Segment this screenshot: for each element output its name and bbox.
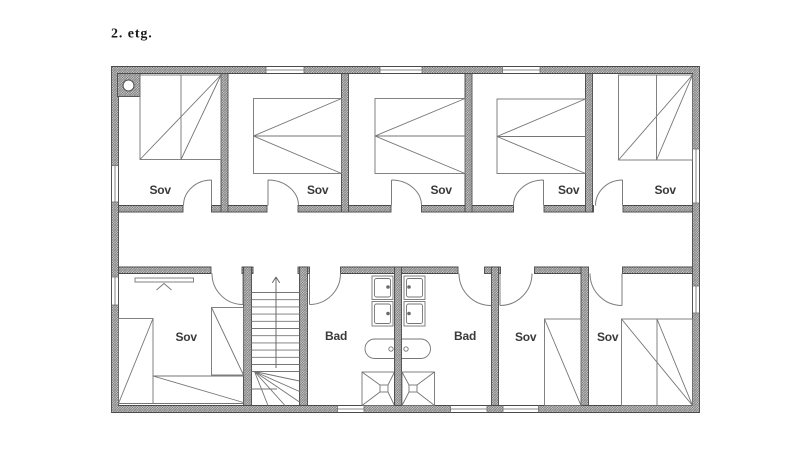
svg-text:Sov: Sov [307,183,329,197]
svg-text:Sov: Sov [655,183,677,197]
svg-text:Sov: Sov [515,330,537,344]
svg-text:Sov: Sov [150,183,172,197]
svg-text:Bad: Bad [454,329,476,343]
svg-text:2. etg.: 2. etg. [111,27,153,42]
svg-text:Sov: Sov [558,183,580,197]
svg-text:Sov: Sov [176,330,198,344]
svg-text:Sov: Sov [597,330,619,344]
svg-text:Bad: Bad [325,329,347,343]
svg-text:Sov: Sov [431,183,453,197]
